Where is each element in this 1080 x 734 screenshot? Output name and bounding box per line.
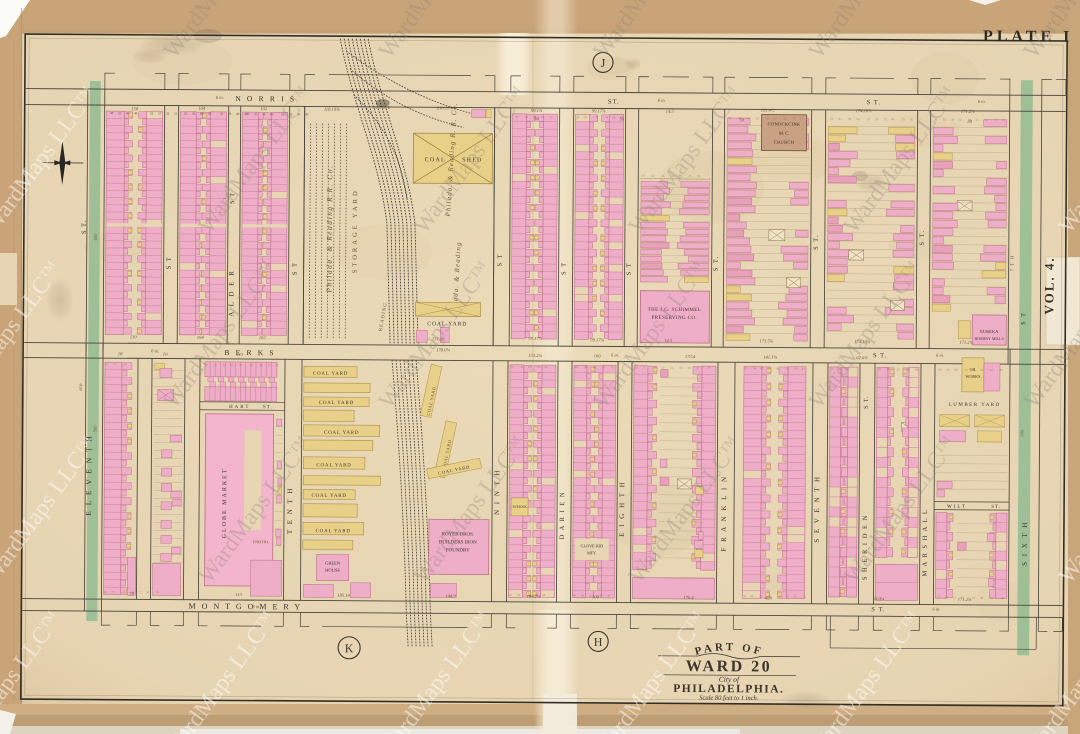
svg-text:M. C.: M. C. [779,131,789,136]
svg-text:7 T H: 7 T H [1011,255,1016,272]
svg-text:K: K [345,641,354,655]
svg-text:29: 29 [246,112,250,116]
svg-text:72: 72 [884,117,888,121]
svg-text:17: 17 [937,596,941,600]
svg-text:41: 41 [521,365,525,369]
svg-text:161.4½: 161.4½ [761,107,775,112]
svg-text:17: 17 [953,596,957,600]
svg-text:6 in.: 6 in. [252,604,260,609]
svg-text:S E V E N T H: S E V E N T H [813,475,821,543]
svg-text:174.10½: 174.10½ [856,108,873,113]
svg-text:91: 91 [830,117,834,121]
svg-text:171.2⅞: 171.2⅞ [959,340,973,345]
svg-text:48: 48 [134,111,138,115]
svg-text:38: 38 [607,593,611,597]
svg-text:600: 600 [93,233,98,241]
svg-text:57: 57 [696,366,700,370]
svg-text:CONOCKCINK: CONOCKCINK [768,122,801,127]
svg-text:53: 53 [131,590,135,594]
svg-text:74: 74 [803,595,807,599]
svg-text:210.11¾: 210.11¾ [437,105,453,110]
svg-text:S T.: S T. [867,99,881,106]
svg-text:28: 28 [576,115,580,119]
svg-text:84: 84 [856,117,860,121]
svg-text:57: 57 [972,596,976,600]
svg-text:25: 25 [778,595,782,599]
svg-text:77: 77 [786,595,790,599]
svg-text:55: 55 [118,111,122,115]
svg-text:38: 38 [688,366,692,370]
svg-text:48: 48 [891,117,895,121]
svg-text:60: 60 [200,112,204,116]
svg-text:56: 56 [544,365,548,369]
svg-text:50: 50 [192,112,196,116]
svg-text:99.17⅛: 99.17⅛ [528,336,542,341]
svg-text:102: 102 [259,335,267,340]
svg-text:F R A N K L I N: F R A N K L I N [720,475,729,552]
svg-text:38: 38 [980,596,984,600]
svg-text:H: H [594,635,603,649]
svg-text:82: 82 [541,115,545,119]
svg-text:75: 75 [902,117,906,121]
svg-text:COAL YARD: COAL YARD [324,431,359,436]
svg-text:PHILADELPHIA.: PHILADELPHIA. [673,683,784,696]
svg-text:25: 25 [254,112,258,116]
svg-text:27: 27 [662,366,666,370]
svg-text:500: 500 [1020,429,1025,437]
svg-text:60: 60 [990,368,994,372]
svg-text:S T.: S T. [713,255,720,271]
svg-text:173.4: 173.4 [685,354,696,359]
svg-text:176.4: 176.4 [683,595,694,600]
svg-text:74: 74 [670,366,674,370]
svg-text:ST.: ST. [263,405,273,410]
svg-text:34: 34 [223,363,227,367]
svg-text:COAL: COAL [425,157,446,163]
svg-text:99.1⅞: 99.1⅞ [531,108,543,113]
svg-text:28: 28 [783,117,787,121]
svg-text:48: 48 [104,590,108,594]
svg-text:84: 84 [915,367,919,371]
svg-text:81: 81 [794,595,798,599]
svg-text:76: 76 [838,117,842,121]
svg-text:20: 20 [250,363,254,367]
svg-text:29: 29 [642,174,646,178]
svg-text:18: 18 [118,351,123,356]
svg-text:153.2¼: 153.2¼ [528,353,542,358]
svg-text:82: 82 [744,366,748,370]
svg-text:6 in.: 6 in. [978,99,986,104]
svg-text:6 in.: 6 in. [151,348,159,353]
svg-text:15: 15 [867,117,871,121]
svg-text:24: 24 [620,116,624,120]
svg-text:32: 32 [590,593,594,597]
svg-text:69: 69 [535,593,539,597]
svg-text:E I G H T H: E I G H T H [618,480,626,537]
svg-text:S T.: S T. [864,395,870,408]
svg-text:23: 23 [976,118,980,122]
svg-text:56: 56 [679,366,683,370]
svg-text:18: 18 [1001,596,1005,600]
svg-text:47: 47 [268,363,272,367]
svg-text:70: 70 [768,367,772,371]
svg-text:79: 79 [601,365,605,369]
svg-text:ST.: ST. [608,98,620,105]
svg-text:COAL YARD: COAL YARD [316,463,351,468]
svg-text:68: 68 [968,118,972,122]
svg-text:99.17⅛: 99.17⅛ [590,337,604,342]
svg-text:18: 18 [510,365,514,369]
svg-text:80: 80 [276,363,280,367]
svg-text:73: 73 [799,117,803,121]
svg-text:64: 64 [230,363,234,367]
svg-text:66: 66 [980,368,984,372]
svg-text:94: 94 [612,115,616,119]
svg-text:19: 19 [877,367,881,371]
svg-text:90: 90 [259,363,263,367]
svg-text:73: 73 [792,117,796,121]
svg-text:WARD 20: WARD 20 [686,658,773,676]
svg-text:31: 31 [220,112,224,116]
svg-text:81: 81 [525,115,529,119]
svg-text:VOL. 4.: VOL. 4. [1041,256,1056,314]
svg-text:66: 66 [581,593,585,597]
svg-text:17: 17 [994,118,998,122]
svg-text:LUMBER YARD: LUMBER YARD [949,403,1001,408]
svg-text:M O N T G O M E R Y: M O N T G O M E R Y [189,602,303,612]
svg-text:84: 84 [746,116,750,120]
svg-text:118.10¾: 118.10¾ [324,107,340,112]
svg-text:HART: HART [229,405,250,410]
svg-text:EUREKA: EUREKA [980,329,999,334]
svg-text:D A R I E N: D A R I E N [559,491,566,540]
svg-text:48: 48 [574,365,578,369]
svg-text:32: 32 [897,367,901,371]
svg-text:GLOVE KID: GLOVE KID [580,543,603,548]
svg-text:S T.: S T. [873,352,887,359]
svg-text:82: 82 [593,365,597,369]
svg-text:49: 49 [126,111,130,115]
svg-text:46: 46 [946,368,950,372]
svg-text:28: 28 [1000,368,1004,372]
svg-text:43: 43 [542,593,546,597]
svg-text:15: 15 [768,595,772,599]
svg-text:32: 32 [166,112,170,116]
svg-text:MFY.: MFY. [587,550,597,555]
svg-text:54: 54 [262,112,266,116]
svg-text:14.5: 14.5 [664,338,673,343]
svg-text:29: 29 [652,366,656,370]
svg-text:72: 72 [972,368,976,372]
svg-text:6 in.: 6 in. [216,95,224,100]
svg-text:COAL YARD: COAL YARD [319,401,354,406]
svg-text:64: 64 [766,116,770,120]
svg-text:6 in.: 6 in. [936,353,944,358]
svg-text:26: 26 [228,112,232,116]
svg-text:HOMINY MILLS: HOMINY MILLS [975,336,1004,341]
svg-text:144.9: 144.9 [445,593,456,598]
svg-text:51: 51 [113,362,117,366]
svg-text:53: 53 [697,174,701,178]
svg-text:50: 50 [938,368,942,372]
svg-text:31: 31 [965,368,969,372]
svg-text:113: 113 [237,352,244,357]
svg-text:59: 59 [208,112,212,116]
svg-text:43: 43 [122,590,126,594]
svg-text:20: 20 [887,367,891,371]
svg-text:Philada. & Reading R.R. Co.: Philada. & Reading R.R. Co. [324,165,334,294]
svg-text:COAL YARD: COAL YARD [313,372,348,377]
svg-text:S T: S T [292,262,299,276]
svg-text:54: 54 [584,365,588,369]
svg-text:32: 32 [774,117,778,121]
svg-text:90: 90 [776,367,780,371]
svg-text:T E N T H: T E N T H [286,487,294,535]
svg-text:S I X T H: S I X T H [1021,521,1029,566]
svg-text:100: 100 [594,353,602,358]
svg-text:46: 46 [906,367,910,371]
svg-text:77: 77 [961,596,965,600]
svg-text:173.5⅞: 173.5⅞ [759,338,773,343]
svg-text:14.5: 14.5 [666,109,675,114]
svg-text:20: 20 [786,367,790,371]
svg-text:171.2⅞: 171.2⅞ [958,597,972,602]
svg-text:185.14: 185.14 [337,593,350,598]
svg-text:79: 79 [537,365,541,369]
svg-text:81: 81 [509,593,513,597]
svg-text:94: 94 [753,366,757,370]
svg-text:66: 66 [750,594,754,598]
svg-text:Scale 80 feet to 1 inch.: Scale 80 feet to 1 inch. [699,695,759,702]
svg-text:M A R S H A L L: M A R S H A L L [922,509,929,577]
svg-text:141.1¾: 141.1¾ [763,354,777,359]
svg-text:73: 73 [112,590,116,594]
svg-text:WORKS: WORKS [965,374,981,379]
svg-text:500: 500 [93,425,98,433]
svg-text:18: 18 [875,117,879,121]
svg-text:113: 113 [235,592,242,597]
svg-text:78: 78 [848,117,852,121]
svg-text:61: 61 [760,366,764,370]
svg-text:72: 72 [528,593,532,597]
svg-text:31: 31 [174,112,178,116]
svg-text:6 in.: 6 in. [932,607,940,612]
svg-text:39: 39 [146,590,150,594]
svg-text:130: 130 [130,334,138,339]
svg-text:50: 50 [794,367,798,371]
svg-text:52: 52 [239,363,243,367]
svg-text:B E R K S: B E R K S [224,348,276,357]
svg-text:52: 52 [528,365,532,369]
svg-text:S T.: S T. [813,234,820,250]
svg-text:31: 31 [105,362,109,366]
svg-text:76: 76 [743,594,747,598]
svg-text:HOUSE: HOUSE [325,568,340,573]
svg-text:50: 50 [1002,118,1006,122]
svg-text:WILT: WILT [947,505,967,510]
svg-text:67: 67 [738,116,742,120]
svg-text:52: 52 [184,112,188,116]
svg-text:S T: S T [497,253,504,267]
svg-text:84: 84 [990,596,994,600]
svg-text:86: 86 [573,593,577,597]
svg-text:59: 59 [517,593,521,597]
svg-text:78: 78 [156,590,160,594]
svg-text:54: 54 [959,118,963,122]
svg-text:48: 48 [110,111,114,115]
svg-text:33: 33 [550,115,554,119]
svg-text:171.2⅞: 171.2⅞ [961,109,975,114]
svg-text:20: 20 [951,118,955,122]
svg-text:104: 104 [198,106,206,111]
svg-text:72: 72 [985,118,989,122]
svg-text:40: 40 [533,115,537,119]
svg-text:S T: S T [561,261,568,275]
svg-text:6 in.: 6 in. [658,98,666,103]
svg-text:S T.: S T. [871,606,885,613]
svg-text:27: 27 [707,366,711,370]
svg-text:99.17⅞: 99.17⅞ [592,108,606,113]
svg-text:S T.: S T. [919,229,926,245]
svg-text:71: 71 [139,590,143,594]
svg-text:GREEN: GREEN [325,561,341,566]
svg-text:10: 10 [163,351,168,356]
svg-text:56: 56 [584,115,588,119]
svg-text:44: 44 [599,593,603,597]
svg-text:COAL YARD: COAL YARD [316,529,351,534]
svg-text:S T: S T [1020,311,1027,325]
svg-text:90: 90 [954,368,958,372]
svg-text:28: 28 [756,116,760,120]
svg-text:43: 43 [802,367,806,371]
svg-text:S T: S T [626,262,633,276]
svg-text:29: 29 [124,362,128,366]
svg-text:END HO.: END HO. [253,539,269,544]
svg-text:CHURCH: CHURCH [774,140,795,145]
svg-text:SCHOOL: SCHOOL [512,505,528,509]
svg-text:28: 28 [595,115,599,119]
svg-text:37: 37 [945,596,949,600]
svg-text:64: 64 [651,174,655,178]
svg-text:ST.: ST. [991,505,1001,510]
svg-text:52: 52 [150,111,154,115]
svg-text:STORAGE YARD: STORAGE YARD [352,188,360,273]
svg-text:102: 102 [260,106,268,111]
svg-text:54: 54 [605,115,609,119]
svg-text:48: 48 [236,112,240,116]
svg-text:23: 23 [759,594,763,598]
svg-text:S T.: S T. [81,220,88,234]
svg-text:63.0¼: 63.0¼ [873,596,885,601]
svg-text:57: 57 [158,111,162,115]
svg-text:COAL YARD: COAL YARD [311,494,346,499]
svg-text:S T: S T [166,256,173,270]
svg-text:60 ft: 60 ft [78,382,83,390]
